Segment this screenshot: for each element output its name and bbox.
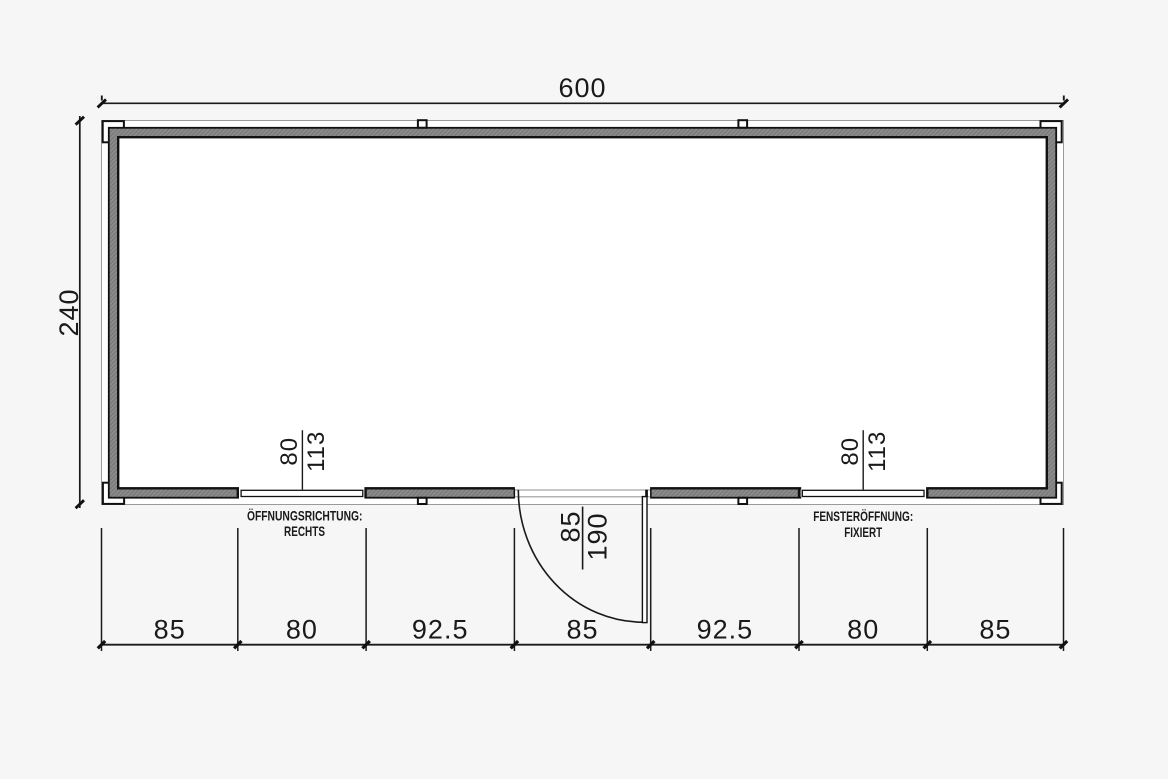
svg-text:80: 80 bbox=[847, 615, 879, 645]
svg-text:ÖFFNUNGSRICHTUNG:: ÖFFNUNGSRICHTUNG: bbox=[247, 508, 363, 524]
svg-text:80: 80 bbox=[286, 615, 318, 645]
svg-text:80: 80 bbox=[276, 437, 303, 466]
svg-text:85: 85 bbox=[566, 615, 598, 645]
svg-text:85: 85 bbox=[979, 615, 1011, 645]
svg-text:FIXIERT: FIXIERT bbox=[844, 524, 882, 540]
svg-text:113: 113 bbox=[864, 431, 891, 472]
svg-text:113: 113 bbox=[303, 431, 330, 472]
svg-text:85: 85 bbox=[556, 510, 586, 542]
svg-text:FENSTERÖFFNUNG:: FENSTERÖFFNUNG: bbox=[813, 508, 913, 524]
svg-text:RECHTS: RECHTS bbox=[284, 523, 325, 539]
svg-text:92.5: 92.5 bbox=[697, 615, 754, 645]
svg-text:80: 80 bbox=[837, 437, 864, 466]
svg-text:190: 190 bbox=[582, 512, 612, 560]
svg-text:240: 240 bbox=[54, 288, 84, 336]
svg-text:600: 600 bbox=[558, 73, 606, 103]
svg-text:92.5: 92.5 bbox=[412, 615, 469, 645]
svg-text:85: 85 bbox=[154, 615, 186, 645]
